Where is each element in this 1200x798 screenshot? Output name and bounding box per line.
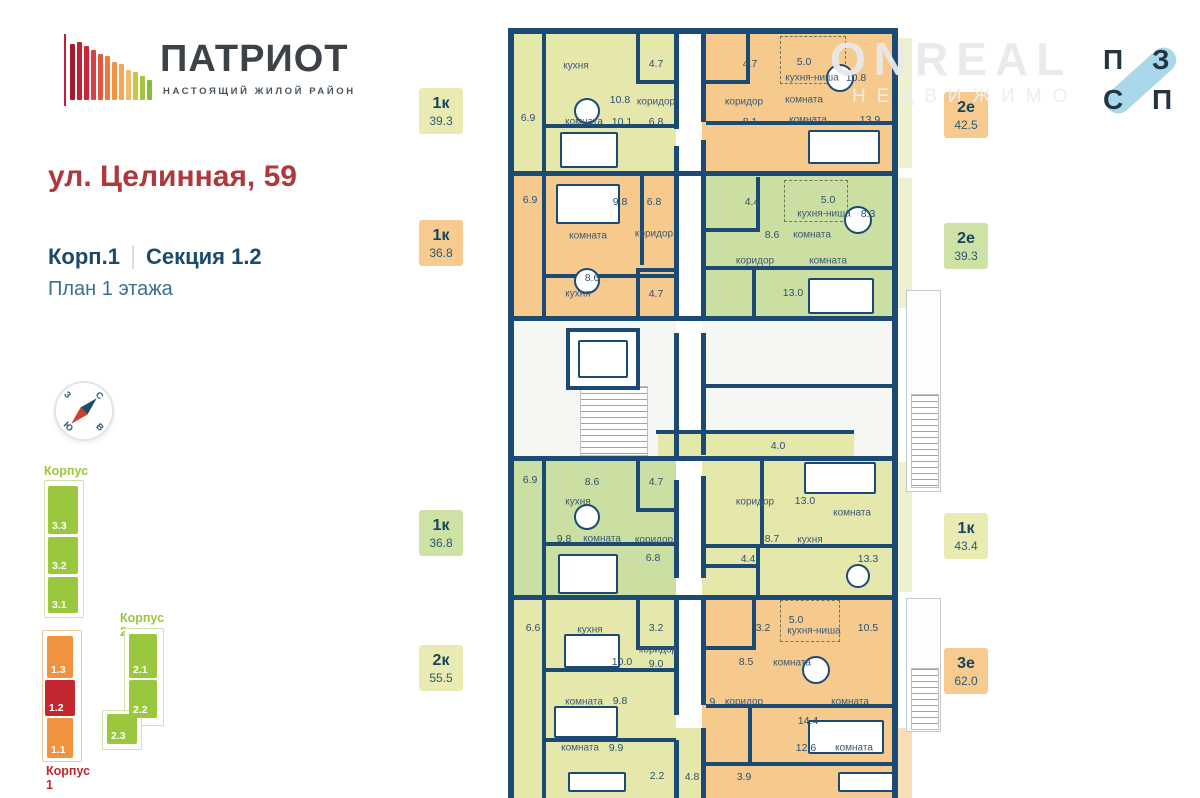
stairs-hatch bbox=[911, 394, 939, 488]
room-name-label: коридор bbox=[635, 229, 673, 240]
wall bbox=[508, 28, 514, 798]
room-name-label: кухня bbox=[565, 497, 590, 508]
room-name-label: коридор bbox=[736, 256, 774, 267]
room-name-label: коридор bbox=[637, 97, 675, 108]
pzsp-letter: П bbox=[1103, 46, 1123, 74]
floor-label: План 1 этажа bbox=[48, 278, 173, 301]
wall bbox=[701, 333, 706, 455]
logo-subtitle: НАСТОЯЩИЙ ЖИЛОЙ РАЙОН bbox=[163, 86, 356, 97]
furniture bbox=[574, 504, 600, 530]
korpus-section-block[interactable]: 1.2 bbox=[45, 680, 75, 716]
apartment-area: 39.3 bbox=[429, 115, 452, 127]
room-area-label: 9.9 bbox=[609, 742, 624, 754]
furniture bbox=[554, 706, 618, 738]
room-area-label: 8.6 bbox=[585, 476, 600, 488]
wall bbox=[542, 598, 546, 798]
logo-bar bbox=[112, 62, 117, 100]
page: ПАТРИОТ НАСТОЯЩИЙ ЖИЛОЙ РАЙОН ул. Целинн… bbox=[0, 0, 1200, 798]
apartment-area: 36.8 bbox=[429, 247, 452, 259]
room-name-label: коридор bbox=[736, 497, 774, 508]
apartment-type: 1к bbox=[433, 518, 450, 534]
room-name-label: комната bbox=[583, 534, 621, 545]
apartment-type: 2к bbox=[433, 653, 450, 669]
apartment-type: 2е bbox=[957, 231, 975, 247]
room-area-label: 13.0 bbox=[783, 287, 803, 299]
room-fill bbox=[898, 728, 912, 798]
pzsp-letter: П bbox=[1152, 86, 1172, 114]
room-name-label: кухня bbox=[797, 535, 822, 546]
wall bbox=[892, 28, 898, 798]
logo-bars-icon bbox=[70, 42, 152, 100]
room-area-label: 6.8 bbox=[649, 116, 664, 128]
room-name-label: комната bbox=[831, 697, 869, 708]
pzsp-letter: З bbox=[1152, 46, 1170, 74]
room-name-label: коридор bbox=[639, 645, 677, 656]
furniture bbox=[808, 278, 874, 314]
apartment-type: 1к bbox=[958, 521, 975, 537]
korpus-section-block[interactable]: 3.2 bbox=[48, 537, 78, 574]
apartment-badge[interactable]: 1к43.4 bbox=[944, 513, 988, 559]
wall bbox=[756, 548, 760, 598]
room-name-label: комната bbox=[835, 743, 873, 754]
watermark-subtitle: НЕДВИЖИМО bbox=[852, 86, 1078, 108]
logo-bar bbox=[126, 70, 131, 100]
room-name-label: комната bbox=[793, 230, 831, 241]
room-area-label: 6.9 bbox=[523, 474, 538, 486]
room-name-label: комната bbox=[833, 508, 871, 519]
room-area-label: 10.0 bbox=[612, 656, 632, 668]
room-name-label: комната bbox=[561, 743, 599, 754]
logo-bar bbox=[77, 42, 82, 100]
apartment-area: 39.3 bbox=[954, 250, 977, 262]
room-area-label: 6.9 bbox=[523, 194, 538, 206]
wall bbox=[636, 598, 640, 648]
logo-bar bbox=[119, 64, 124, 100]
compass-west: З bbox=[62, 389, 73, 400]
divider bbox=[132, 245, 134, 269]
room-name-label: комната bbox=[789, 115, 827, 126]
room-area-label: 2.2 bbox=[650, 770, 665, 782]
building-label: Корп.1 bbox=[48, 244, 120, 270]
wall bbox=[701, 34, 706, 122]
room-area-label: 5.0 bbox=[821, 194, 836, 206]
room-area-label: 8.7 bbox=[765, 533, 780, 545]
wall bbox=[701, 476, 706, 578]
apartment-badge[interactable]: 1к39.3 bbox=[419, 88, 463, 134]
room-area-label: 9.8 bbox=[613, 196, 628, 208]
room-area-label: 8.6 bbox=[765, 229, 780, 241]
apartment-badge[interactable]: 2к55.5 bbox=[419, 645, 463, 691]
room-name-label: комната bbox=[785, 95, 823, 106]
stairs-hatch bbox=[911, 668, 939, 730]
compass-icon: С В Ю З bbox=[54, 381, 114, 441]
wall bbox=[701, 595, 706, 705]
room-name-label: комната bbox=[809, 256, 847, 267]
room-area-label: 13.0 bbox=[795, 495, 815, 507]
page-title-address: ул. Целинная, 59 bbox=[48, 160, 297, 194]
room-name-label: комната bbox=[569, 231, 607, 242]
furniture bbox=[846, 564, 870, 588]
logo-bar bbox=[70, 44, 75, 100]
building-section-line: Корп.1 Секция 1.2 bbox=[48, 244, 262, 270]
room-name-label: комната bbox=[565, 697, 603, 708]
korpus-section-block[interactable]: 3.3 bbox=[48, 486, 78, 534]
apartment-type: 1к bbox=[433, 228, 450, 244]
wall bbox=[508, 456, 898, 461]
room-area-label: 3.2 bbox=[756, 622, 771, 634]
korpus-section-block[interactable]: 2.1 bbox=[129, 634, 157, 678]
korpus-section-block[interactable]: 1.1 bbox=[47, 718, 73, 758]
logo-bar bbox=[84, 46, 89, 100]
room-area-label: 6.8 bbox=[646, 552, 661, 564]
apartment-type: 3е bbox=[957, 656, 975, 672]
pzsp-letter: С bbox=[1103, 86, 1123, 114]
room-area-label: 9.0 bbox=[649, 658, 664, 670]
room-fill bbox=[898, 178, 912, 308]
wall bbox=[748, 708, 752, 764]
furniture bbox=[838, 772, 894, 792]
room-name-label: кухня-ниша bbox=[797, 209, 850, 220]
wall bbox=[542, 175, 546, 318]
furniture bbox=[560, 132, 618, 168]
wall bbox=[542, 34, 546, 173]
logo-bar bbox=[133, 72, 138, 100]
wall bbox=[706, 762, 892, 766]
wall bbox=[704, 228, 760, 232]
room-area-label: 10.8 bbox=[610, 94, 630, 106]
room-area-label: 4.7 bbox=[649, 476, 664, 488]
room-area-label: 6.8 bbox=[647, 196, 662, 208]
logo-bar bbox=[140, 76, 145, 100]
logo-flag-pole bbox=[64, 34, 66, 106]
korpus-section-block[interactable]: 2.2 bbox=[129, 680, 157, 718]
room-area-label: 10.5 bbox=[858, 622, 878, 634]
wall bbox=[636, 508, 678, 512]
wall bbox=[752, 270, 756, 316]
logo-bar bbox=[98, 54, 103, 100]
room-area-label: 13.3 bbox=[858, 553, 878, 565]
wall bbox=[636, 460, 640, 510]
room-area-label: 3.2 bbox=[649, 622, 664, 634]
room-area-label: 8.3 bbox=[861, 208, 876, 220]
wall bbox=[674, 740, 679, 798]
room-area-label: 12.6 bbox=[796, 742, 816, 754]
wall bbox=[636, 80, 678, 84]
wall bbox=[542, 460, 546, 598]
room-name-label: коридор bbox=[725, 697, 763, 708]
floor-plan: 6.9кухня10.8комната10.14.7коридор6.84.7к… bbox=[508, 28, 940, 798]
room-name-label: коридор bbox=[635, 535, 673, 546]
apartment-badge[interactable]: 3е62.0 bbox=[944, 648, 988, 694]
wall bbox=[674, 480, 679, 578]
room-area-label: 4.7 bbox=[743, 58, 758, 70]
wall bbox=[674, 146, 679, 318]
wall bbox=[636, 268, 640, 318]
room-area-label: 13.9 bbox=[860, 114, 880, 126]
room-area-label: 10.1 bbox=[612, 116, 632, 128]
apartment-badge[interactable]: 2е39.3 bbox=[944, 223, 988, 269]
logo-bar bbox=[105, 56, 110, 100]
logo-bar bbox=[147, 80, 152, 100]
room-area-label: 14.4 bbox=[798, 715, 818, 727]
room-name-label: кухня bbox=[577, 625, 602, 636]
apartment-badge[interactable]: 1к36.8 bbox=[419, 510, 463, 556]
compass-east: В bbox=[94, 421, 106, 433]
furniture bbox=[558, 554, 618, 594]
wall bbox=[656, 430, 854, 434]
wall bbox=[636, 34, 640, 84]
room-area-label: 8.6 bbox=[585, 272, 600, 284]
korpus-section-block[interactable]: 2.3 bbox=[107, 714, 137, 744]
furniture bbox=[556, 184, 620, 224]
room-area-label: 6.9 bbox=[521, 112, 536, 124]
room-name-label: кухня bbox=[563, 61, 588, 72]
korpus-section-block[interactable]: 1.3 bbox=[47, 636, 73, 678]
room-area-label: 4.8 bbox=[685, 771, 700, 783]
watermark-brand: ONREAL bbox=[830, 32, 1072, 86]
korpus-label: Корпус 1 bbox=[46, 764, 90, 792]
korpus-section-block[interactable]: 3.1 bbox=[48, 577, 78, 613]
room-area-label: 9.8 bbox=[557, 533, 572, 545]
room-area-label: 4.7 bbox=[649, 58, 664, 70]
room-area-label: 6.6 bbox=[526, 622, 541, 634]
room-area-label: 8.5 bbox=[739, 656, 754, 668]
logo-bar bbox=[91, 50, 96, 100]
room-area-label: 4.4 bbox=[741, 553, 756, 565]
room-name-label: кухня-ниша bbox=[787, 626, 840, 637]
furniture bbox=[804, 462, 876, 494]
apartment-area: 43.4 bbox=[954, 540, 977, 552]
room-area-label: 5.0 bbox=[797, 56, 812, 68]
room-area-label: 4.4 bbox=[745, 196, 760, 208]
apartment-area: 42.5 bbox=[954, 119, 977, 131]
apartment-type: 1к bbox=[433, 96, 450, 112]
room-name-label: кухня bbox=[565, 289, 590, 300]
room-area-label: 9.8 bbox=[613, 695, 628, 707]
furniture bbox=[578, 340, 628, 378]
wall bbox=[674, 333, 679, 458]
room-area-label: 3.9 bbox=[701, 696, 716, 708]
room-area-label: 5.0 bbox=[789, 614, 804, 626]
furniture bbox=[568, 772, 626, 792]
room-area-label: 3.9 bbox=[737, 771, 752, 783]
stairs-hatch bbox=[580, 386, 648, 456]
wall bbox=[706, 266, 892, 270]
wall bbox=[636, 268, 678, 272]
wall bbox=[704, 384, 894, 388]
apartment-area: 55.5 bbox=[429, 672, 452, 684]
section-label: Секция 1.2 bbox=[146, 244, 262, 270]
room-area-label: 4.7 bbox=[649, 288, 664, 300]
apartment-badge[interactable]: 1к36.8 bbox=[419, 220, 463, 266]
compass-rose: С В Ю З bbox=[44, 371, 123, 450]
apartment-area: 36.8 bbox=[429, 537, 452, 549]
room-area-label: 4.0 bbox=[771, 440, 786, 452]
wall bbox=[546, 274, 676, 278]
wall bbox=[704, 646, 756, 650]
furniture bbox=[808, 130, 880, 164]
room-name-label: комната bbox=[565, 117, 603, 128]
room-name-label: коридор bbox=[725, 97, 763, 108]
room-area-label: 8.1 bbox=[743, 116, 758, 128]
wall bbox=[640, 175, 644, 265]
apartment-area: 62.0 bbox=[954, 675, 977, 687]
logo-title: ПАТРИОТ bbox=[160, 38, 349, 81]
wall bbox=[704, 80, 750, 84]
room-name-label: комната bbox=[773, 658, 811, 669]
